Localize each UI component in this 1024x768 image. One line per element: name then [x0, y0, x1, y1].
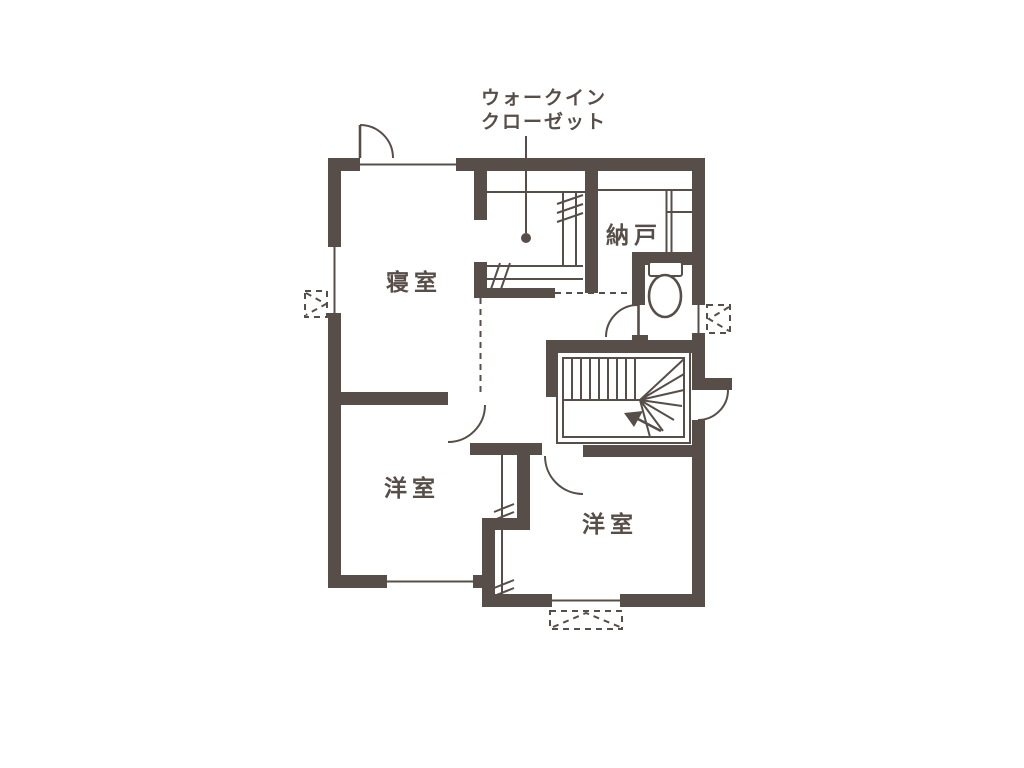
pipe-hatch: [494, 504, 514, 520]
wall-segment: [583, 445, 692, 457]
floor-plan-page: ウォークイン クローゼット 寝室 納戸 洋室 洋室: [0, 0, 1024, 768]
toilet: [649, 262, 682, 317]
door-swing-arc: [360, 125, 393, 158]
room-label-western-room-right: 洋室: [582, 511, 638, 538]
door-bedroom-entry: [360, 125, 393, 158]
wall-segment: [692, 420, 705, 607]
door-swing-arc-exterior: [698, 390, 728, 420]
wall-segment: [328, 158, 341, 247]
stair-outline: [557, 352, 690, 443]
walk-in-closet-label-line2: クローゼット: [481, 110, 607, 133]
door-toilet: [606, 305, 639, 337]
wall-segment: [692, 158, 705, 305]
wall-segment: [482, 530, 495, 607]
door-swing-arc: [606, 305, 638, 337]
wall-segment: [328, 392, 448, 405]
window-shutter-dashed-box: [707, 305, 730, 333]
wall-segment: [482, 518, 530, 530]
wall-segment: [585, 171, 598, 293]
floor-plan-canvas: ウォークイン クローゼット 寝室 納戸 洋室 洋室: [0, 0, 1024, 768]
wall-segment: [328, 575, 387, 588]
wall-segment: [456, 158, 705, 171]
wall-segment: [474, 171, 487, 220]
wall-segment: [328, 313, 341, 588]
window-shutter-dashed-box: [550, 611, 622, 629]
toilet-bowl: [649, 275, 681, 317]
room-label-bedroom: 寝室: [386, 269, 442, 296]
label-leader: [521, 136, 531, 243]
room-label-storage: 納戸: [606, 222, 662, 249]
wall-segment: [692, 333, 705, 378]
room-label-western-room-left: 洋室: [384, 475, 440, 502]
pipe-hatch: [494, 580, 514, 596]
window-shutter-dashed-box: [305, 291, 327, 317]
door-swing-arc-left-room: [448, 405, 485, 442]
walk-in-closet-fittings: [487, 192, 585, 289]
walk-in-closet-label-line1: ウォークイン: [481, 87, 607, 109]
staircase: [557, 352, 690, 443]
wall-segment: [474, 288, 555, 298]
door-swing-arc-right-room: [545, 456, 583, 494]
wall-segment: [632, 265, 645, 305]
wall-segment: [470, 443, 542, 455]
pipe-hatch: [557, 195, 583, 222]
wall-segment: [692, 378, 732, 390]
leader-dot: [521, 233, 531, 243]
